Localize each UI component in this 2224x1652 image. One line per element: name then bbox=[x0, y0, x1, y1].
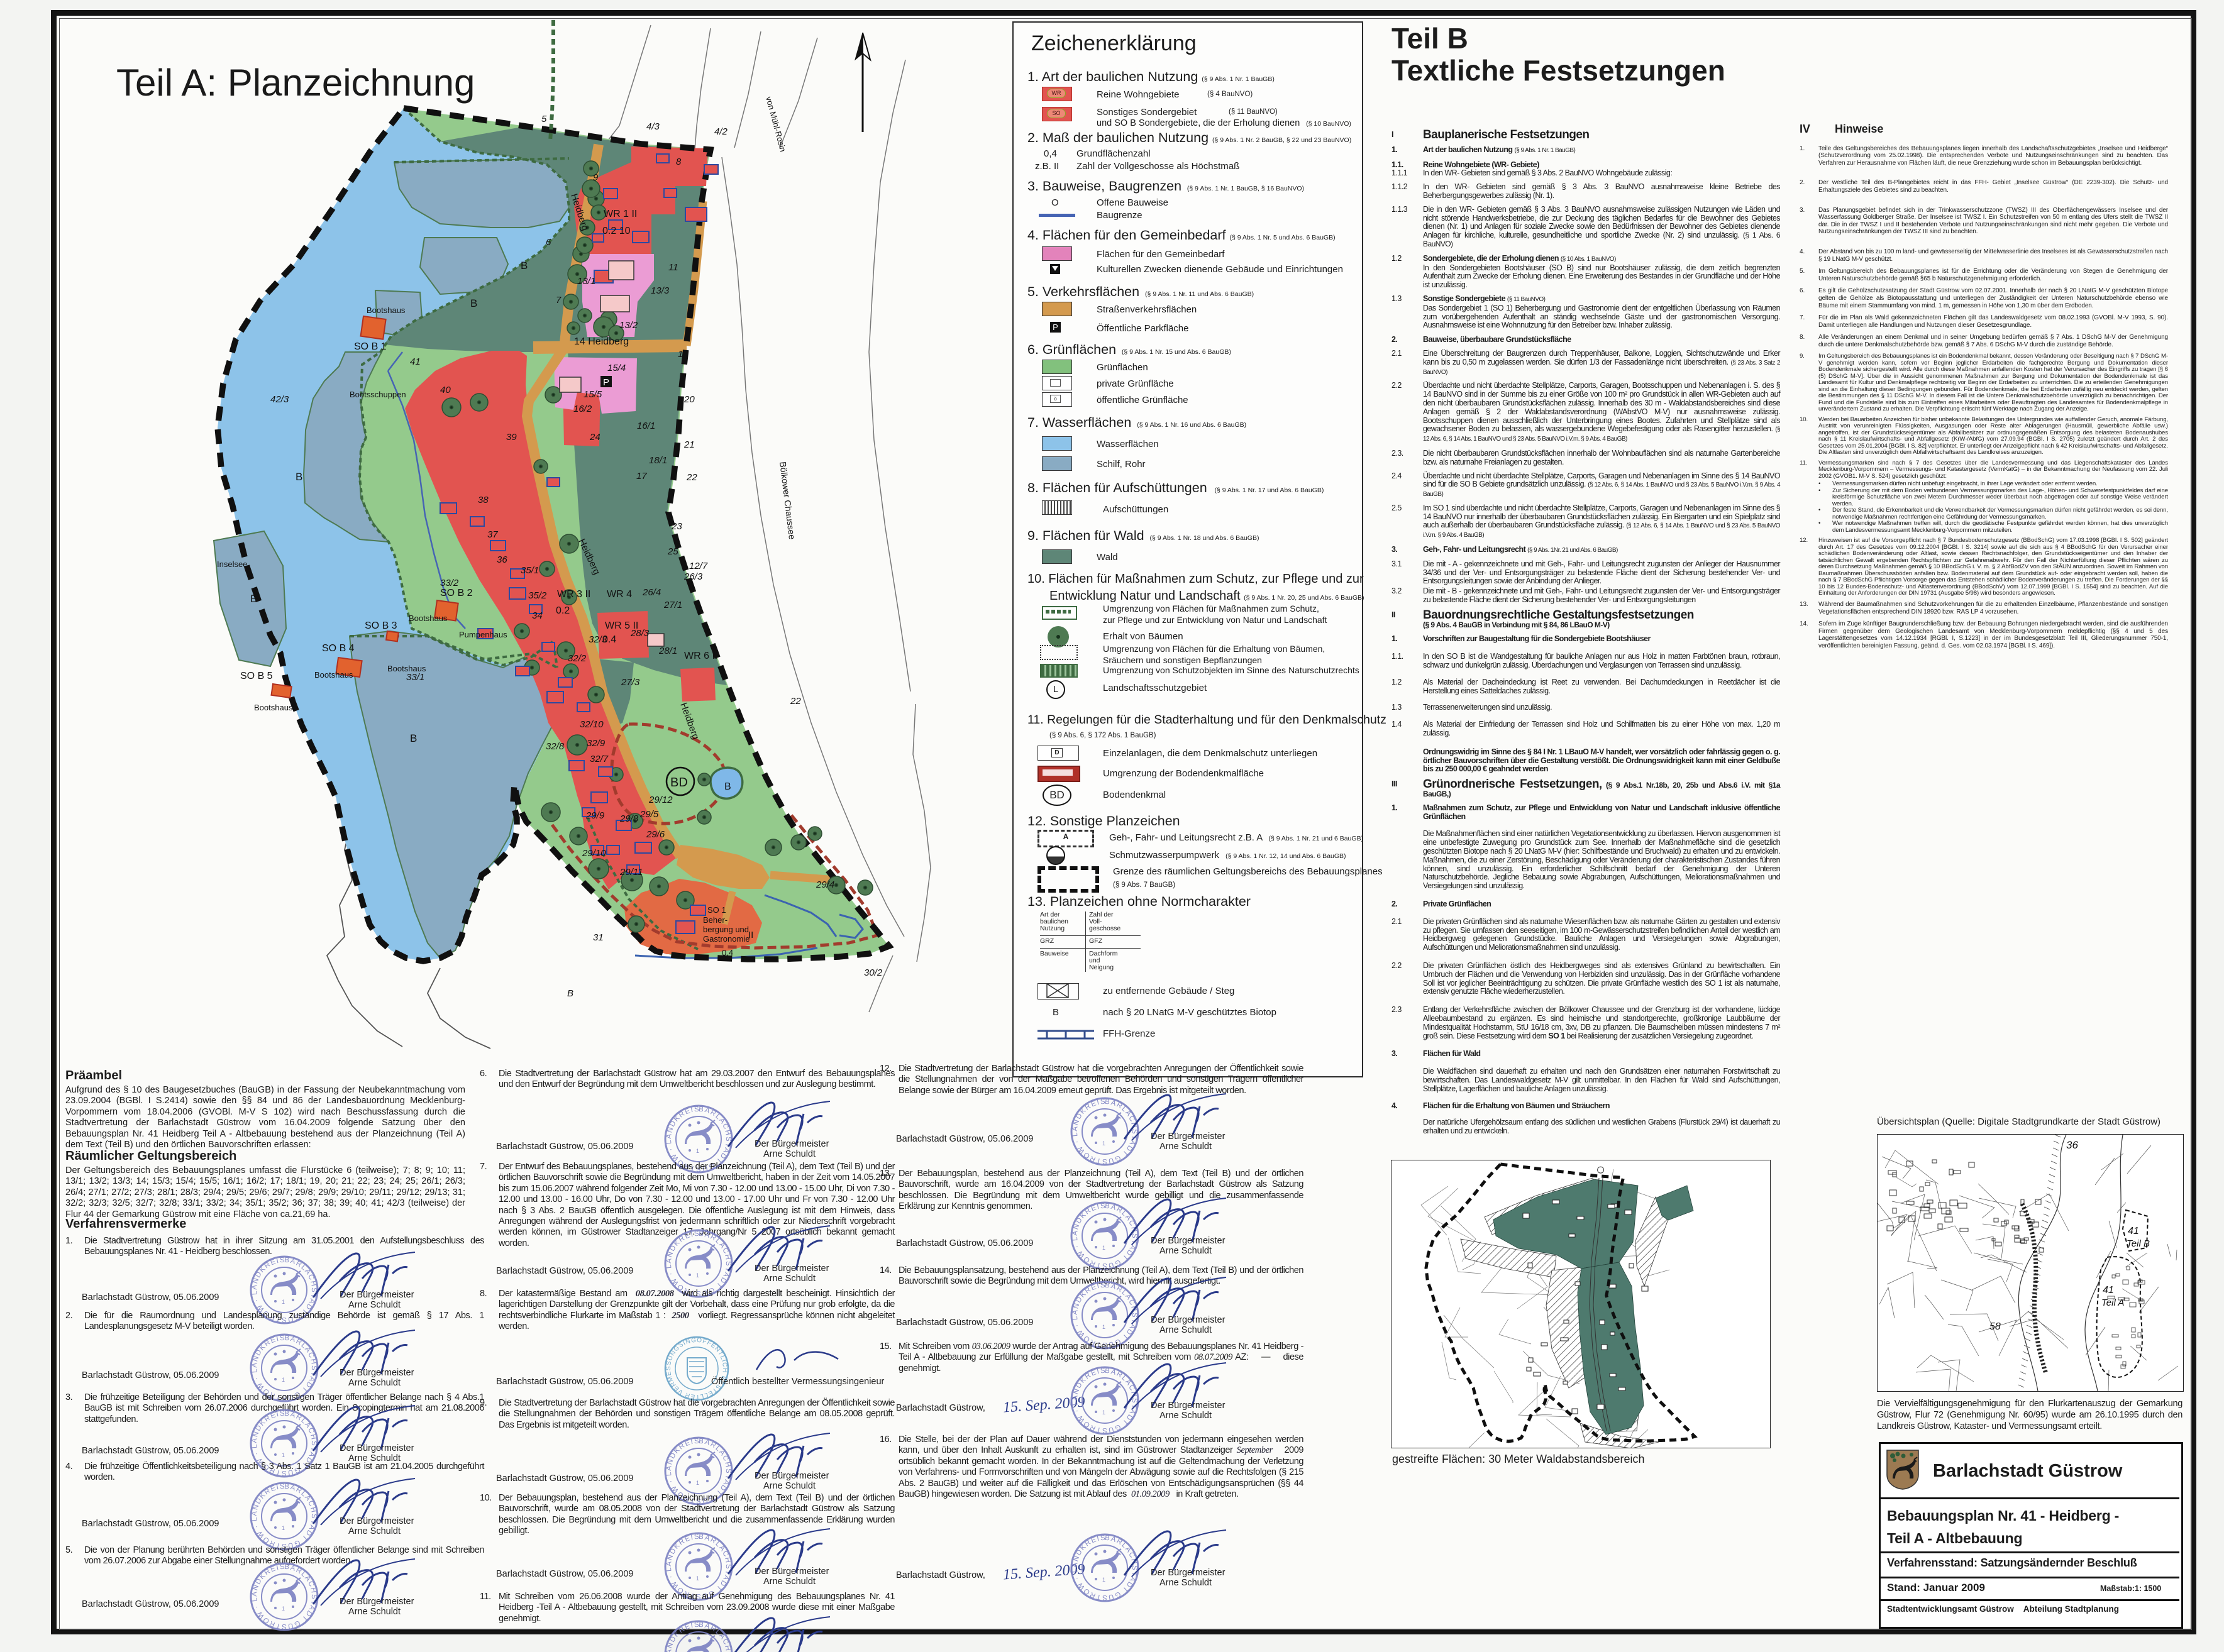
svg-text:von Mühl-Rosin: von Mühl-Rosin bbox=[764, 96, 788, 153]
svg-text:14 Heidberg: 14 Heidberg bbox=[574, 336, 629, 347]
svg-text:WR 4: WR 4 bbox=[607, 589, 632, 600]
svg-text:Bootshaus: Bootshaus bbox=[409, 614, 448, 623]
svg-text:31: 31 bbox=[593, 932, 604, 943]
svg-text:Beher-: Beher- bbox=[703, 915, 728, 925]
svg-text:B: B bbox=[724, 781, 731, 792]
svg-text:34: 34 bbox=[532, 610, 543, 621]
svg-text:22: 22 bbox=[686, 472, 697, 483]
svg-text:13/2: 13/2 bbox=[619, 320, 638, 331]
svg-text:BD: BD bbox=[670, 776, 688, 790]
svg-text:13/3: 13/3 bbox=[651, 285, 670, 296]
svg-text:13/1: 13/1 bbox=[577, 276, 595, 287]
svg-text:Bootshaus: Bootshaus bbox=[387, 664, 426, 673]
svg-text:SO B 5: SO B 5 bbox=[240, 671, 273, 681]
svg-text:32/8: 32/8 bbox=[546, 741, 565, 752]
svg-text:5: 5 bbox=[541, 114, 547, 124]
svg-text:28/1: 28/1 bbox=[658, 646, 677, 656]
svg-text:33/2: 33/2 bbox=[440, 578, 459, 588]
svg-text:Gastronomie: Gastronomie bbox=[703, 934, 750, 944]
svg-text:29/12: 29/12 bbox=[648, 795, 673, 805]
svg-text:33/1: 33/1 bbox=[406, 672, 424, 683]
svg-text:30/2: 30/2 bbox=[864, 967, 883, 978]
svg-text:29/4: 29/4 bbox=[816, 879, 834, 890]
svg-text:40: 40 bbox=[440, 385, 451, 395]
svg-text:22: 22 bbox=[790, 696, 801, 707]
svg-text:WR 3 II: WR 3 II bbox=[557, 589, 590, 600]
svg-text:37: 37 bbox=[487, 529, 498, 540]
svg-text:9: 9 bbox=[593, 172, 599, 183]
svg-text:B: B bbox=[410, 732, 417, 744]
svg-text:WR 5 II: WR 5 II bbox=[605, 620, 638, 631]
svg-text:41: 41 bbox=[2128, 1226, 2139, 1236]
svg-text:WR 1 II: WR 1 II bbox=[604, 209, 637, 219]
svg-text:Bölkower Chaussee: Bölkower Chaussee bbox=[778, 461, 797, 540]
svg-text:Bootshaus: Bootshaus bbox=[254, 703, 293, 712]
svg-text:B: B bbox=[567, 988, 573, 999]
svg-text:SO B 3: SO B 3 bbox=[365, 620, 397, 631]
svg-text:18/1: 18/1 bbox=[649, 455, 667, 466]
svg-text:B: B bbox=[521, 260, 528, 272]
svg-text:Teil A: Planzeichnung: Teil A: Planzeichnung bbox=[116, 62, 475, 104]
svg-text:II: II bbox=[748, 930, 753, 940]
svg-text:41: 41 bbox=[410, 356, 421, 367]
svg-text:P: P bbox=[603, 377, 609, 388]
svg-text:SO B 1: SO B 1 bbox=[354, 341, 387, 352]
svg-text:0.2: 0.2 bbox=[556, 605, 570, 616]
svg-text:0.4: 0.4 bbox=[722, 948, 733, 957]
svg-text:0.4: 0.4 bbox=[602, 634, 616, 645]
svg-text:4/2: 4/2 bbox=[714, 126, 728, 137]
svg-text:19: 19 bbox=[678, 349, 689, 360]
svg-text:17: 17 bbox=[636, 471, 647, 482]
svg-text:SO B 2: SO B 2 bbox=[440, 588, 473, 598]
svg-text:B: B bbox=[296, 471, 302, 483]
svg-text:7: 7 bbox=[556, 295, 562, 306]
svg-text:26/3: 26/3 bbox=[683, 571, 703, 582]
svg-text:bergung und: bergung und bbox=[703, 925, 749, 934]
svg-text:23: 23 bbox=[671, 521, 682, 532]
svg-text:WR 6 II: WR 6 II bbox=[684, 651, 717, 661]
svg-text:35/1: 35/1 bbox=[521, 565, 539, 576]
svg-text:12/7: 12/7 bbox=[689, 561, 708, 571]
svg-text:21: 21 bbox=[683, 439, 695, 450]
svg-text:42/3: 42/3 bbox=[270, 394, 289, 405]
svg-text:32/2: 32/2 bbox=[568, 653, 587, 664]
svg-text:B: B bbox=[250, 593, 257, 605]
svg-text:Inselsee: Inselsee bbox=[217, 559, 247, 569]
svg-text:29/8: 29/8 bbox=[619, 813, 639, 824]
svg-text:32/7: 32/7 bbox=[590, 754, 609, 764]
svg-text:29/6: 29/6 bbox=[646, 829, 665, 840]
svg-text:Bootshaus: Bootshaus bbox=[314, 670, 353, 680]
svg-text:SO 1: SO 1 bbox=[707, 905, 726, 915]
svg-text:11: 11 bbox=[668, 262, 678, 273]
svg-text:16/2: 16/2 bbox=[573, 404, 592, 414]
svg-text:Teil B: Teil B bbox=[2127, 1238, 2150, 1249]
svg-text:B: B bbox=[470, 297, 477, 309]
svg-text:0.2 10: 0.2 10 bbox=[602, 226, 631, 236]
svg-text:8: 8 bbox=[676, 157, 682, 167]
svg-text:29/5: 29/5 bbox=[639, 809, 659, 820]
svg-text:26/4: 26/4 bbox=[642, 587, 661, 598]
svg-text:Bootshaus: Bootshaus bbox=[367, 306, 406, 315]
svg-text:15/4: 15/4 bbox=[607, 363, 626, 373]
svg-text:25: 25 bbox=[667, 546, 678, 557]
svg-text:36: 36 bbox=[2066, 1139, 2078, 1151]
svg-text:24: 24 bbox=[589, 432, 600, 443]
svg-text:38: 38 bbox=[478, 495, 489, 505]
svg-text:39: 39 bbox=[506, 432, 517, 443]
svg-text:29/11: 29/11 bbox=[619, 867, 643, 878]
svg-text:16/1: 16/1 bbox=[637, 421, 655, 431]
svg-text:Teil A: Teil A bbox=[2101, 1297, 2124, 1308]
svg-text:SO B 4: SO B 4 bbox=[322, 643, 355, 654]
svg-text:36: 36 bbox=[497, 554, 507, 565]
svg-text:6: 6 bbox=[546, 237, 551, 248]
svg-text:27/1: 27/1 bbox=[663, 600, 682, 610]
svg-text:32/9: 32/9 bbox=[587, 738, 606, 749]
svg-text:41: 41 bbox=[2103, 1285, 2114, 1296]
svg-text:27/3: 27/3 bbox=[621, 677, 640, 688]
svg-text:4/3: 4/3 bbox=[646, 121, 660, 132]
svg-text:32/10: 32/10 bbox=[580, 719, 604, 730]
svg-text:Bootsschuppen: Bootsschuppen bbox=[350, 390, 406, 399]
svg-text:Pumpenhaus: Pumpenhaus bbox=[459, 630, 507, 639]
svg-text:29/9: 29/9 bbox=[585, 810, 605, 821]
svg-text:20: 20 bbox=[683, 394, 695, 405]
svg-text:15/5: 15/5 bbox=[584, 389, 602, 400]
svg-text:58: 58 bbox=[1989, 1321, 2001, 1332]
svg-text:35/2: 35/2 bbox=[528, 590, 547, 601]
svg-text:29/10: 29/10 bbox=[582, 848, 606, 859]
